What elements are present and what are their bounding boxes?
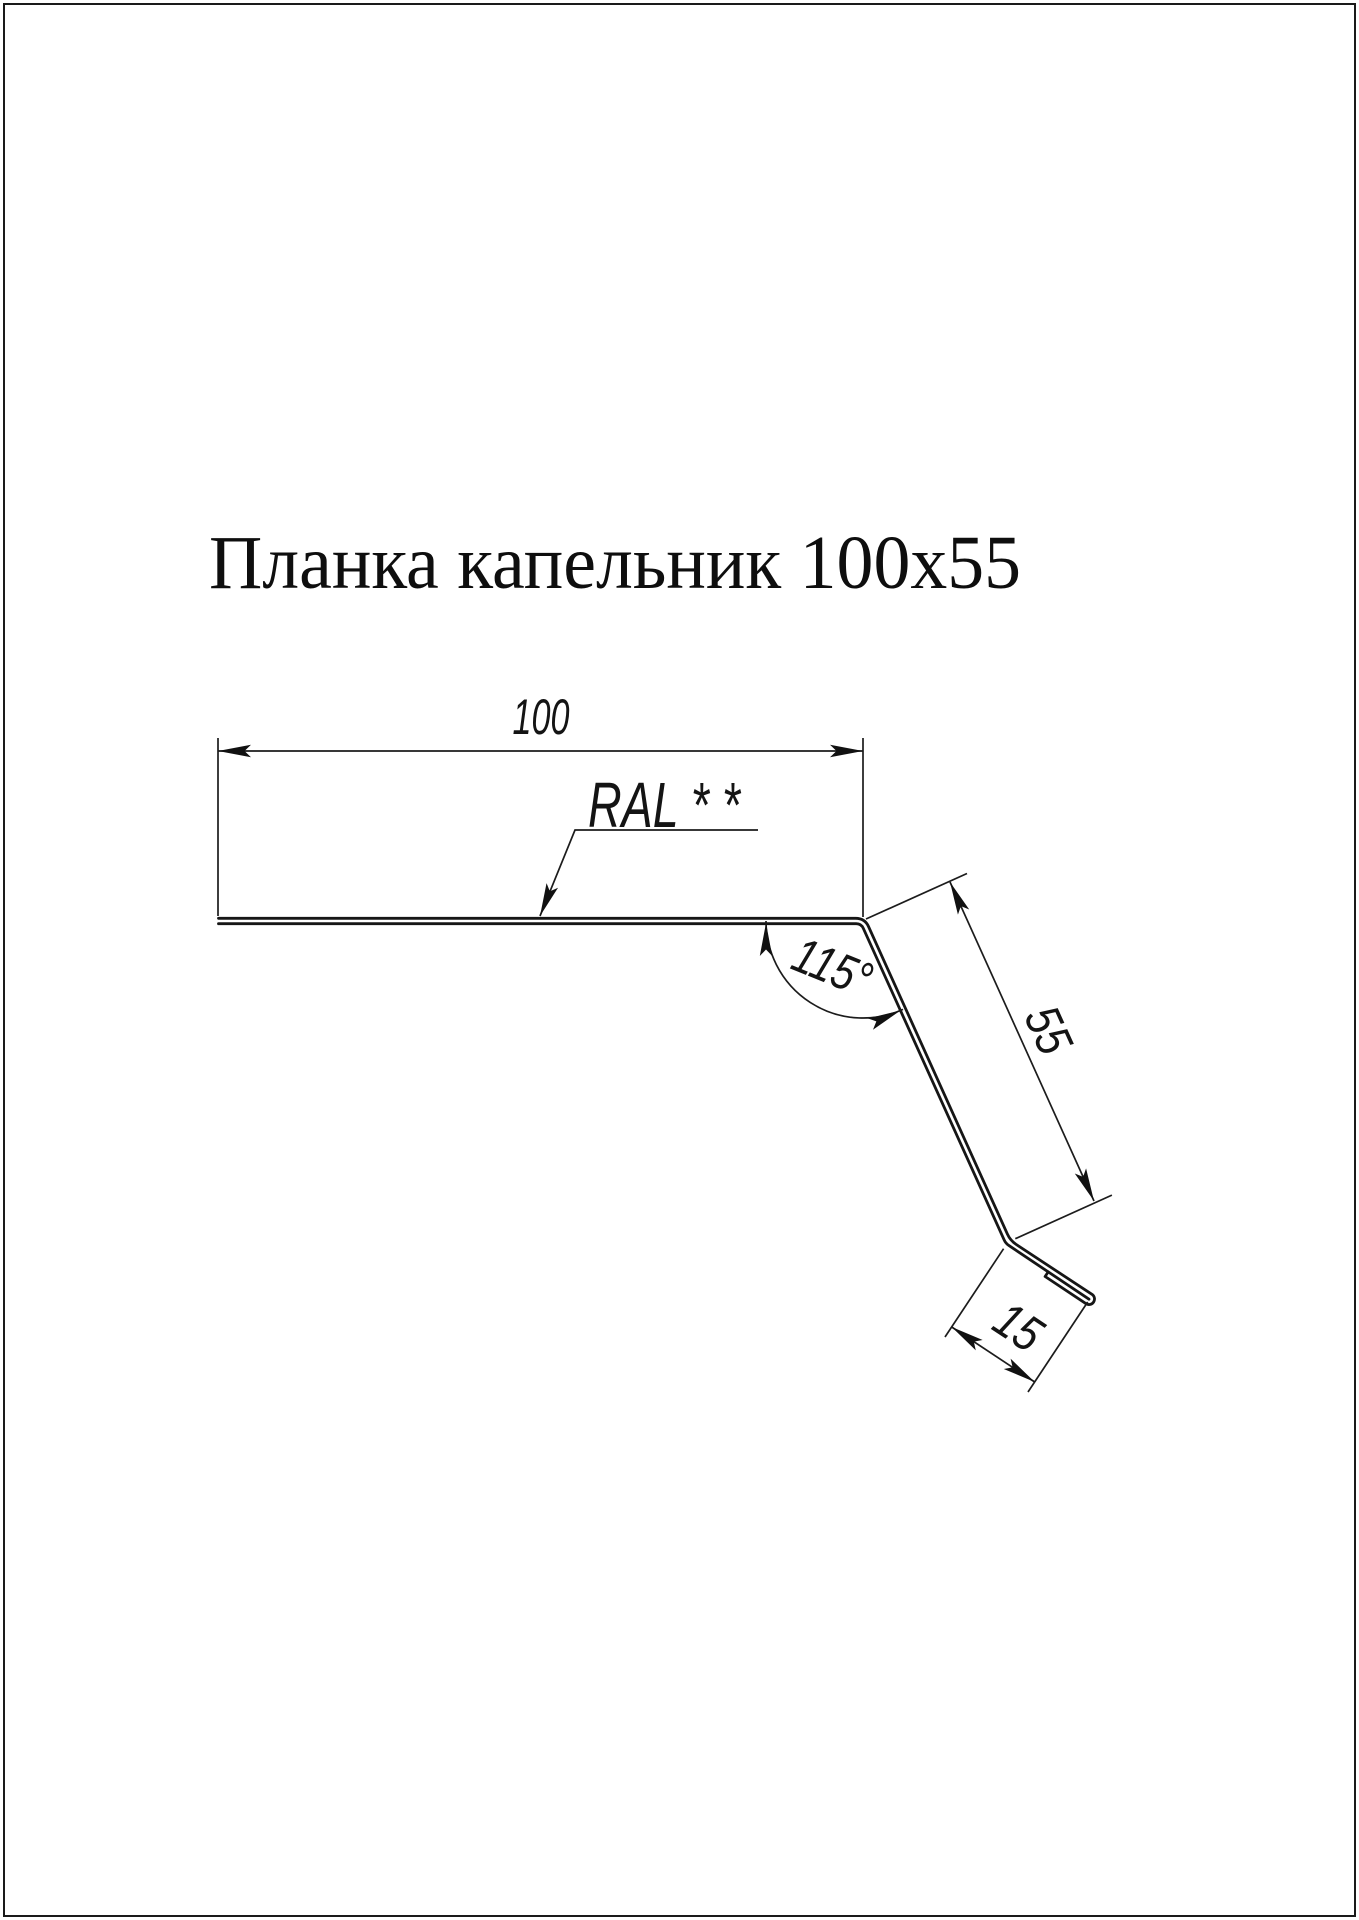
coating-leader: RAL * *: [534, 769, 758, 918]
dimension-lip: 15: [945, 1249, 1088, 1392]
lip-dim-arrow-upper: [948, 1322, 982, 1351]
angle-arrow-flange: [760, 923, 772, 956]
leader-arrow: [534, 883, 558, 918]
web-dim-arrow-bottom: [1075, 1168, 1100, 1203]
lip-dim-arrow-lower: [1004, 1359, 1038, 1388]
web-extension-line-top: [866, 874, 967, 920]
web-dim-label: 55: [1014, 998, 1084, 1063]
dimension-web-height: 55: [866, 874, 1112, 1239]
lip-dim-label: 15: [984, 1291, 1053, 1363]
dimension-width: 100: [218, 689, 863, 917]
leader-line: [540, 830, 758, 916]
dimension-angle: 115°: [760, 921, 903, 1030]
coating-label: RAL * *: [588, 769, 742, 841]
web-dim-arrow-top: [944, 879, 969, 914]
angle-arrow-web: [868, 1005, 903, 1030]
technical-drawing-canvas: Планка капельник 100x55 100 RAL * *: [0, 0, 1359, 1920]
angle-dim-label: 115°: [785, 926, 880, 1008]
profile-inner-surface: [219, 924, 1090, 1299]
drawing-sheet: Планка капельник 100x55 100 RAL * *: [0, 0, 1359, 1920]
width-dim-label: 100: [513, 689, 570, 745]
profile-outer-surface: [219, 918, 1095, 1304]
profile-outline: [219, 918, 1095, 1304]
web-extension-line-bottom: [1015, 1195, 1112, 1239]
page-title: Планка капельник 100x55: [209, 521, 1021, 605]
